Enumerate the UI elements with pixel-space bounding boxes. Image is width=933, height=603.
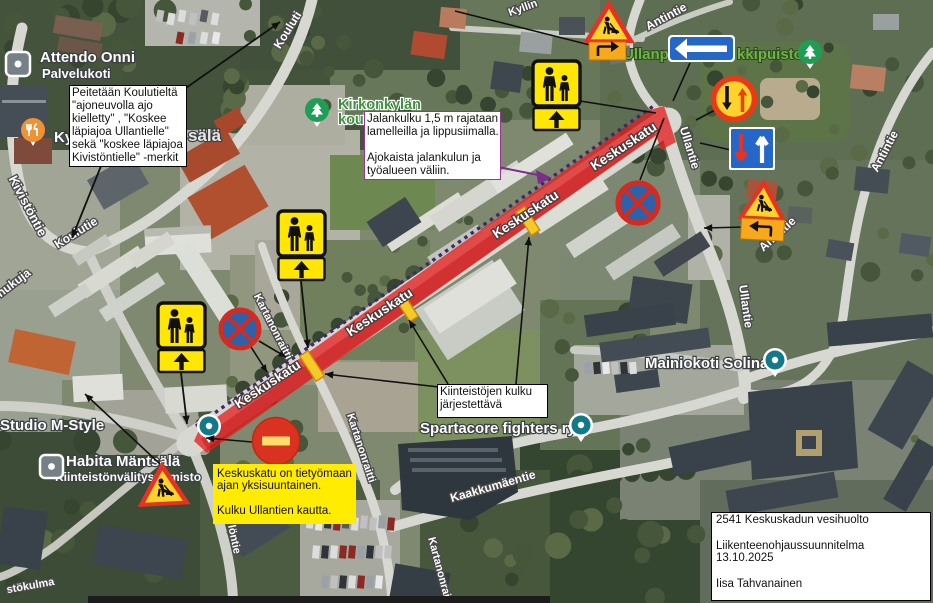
svg-text:sälä: sälä	[188, 126, 222, 145]
svg-text:Studio M-Style: Studio M-Style	[0, 417, 104, 434]
svg-text:Spartacore fighters ry: Spartacore fighters ry	[420, 420, 577, 437]
svg-text:kkipuisto: kkipuisto	[737, 46, 803, 63]
svg-text:Kiinteistönvälitystoimisto: Kiinteistönvälitystoimisto	[55, 470, 201, 484]
svg-text:Attendo Onni: Attendo Onni	[40, 49, 135, 66]
svg-text:Mainiokoti Solina: Mainiokoti Solina	[645, 355, 769, 372]
svg-text:Ullanp: Ullanp	[623, 46, 669, 63]
svg-text:Palvelukoti: Palvelukoti	[42, 66, 111, 81]
